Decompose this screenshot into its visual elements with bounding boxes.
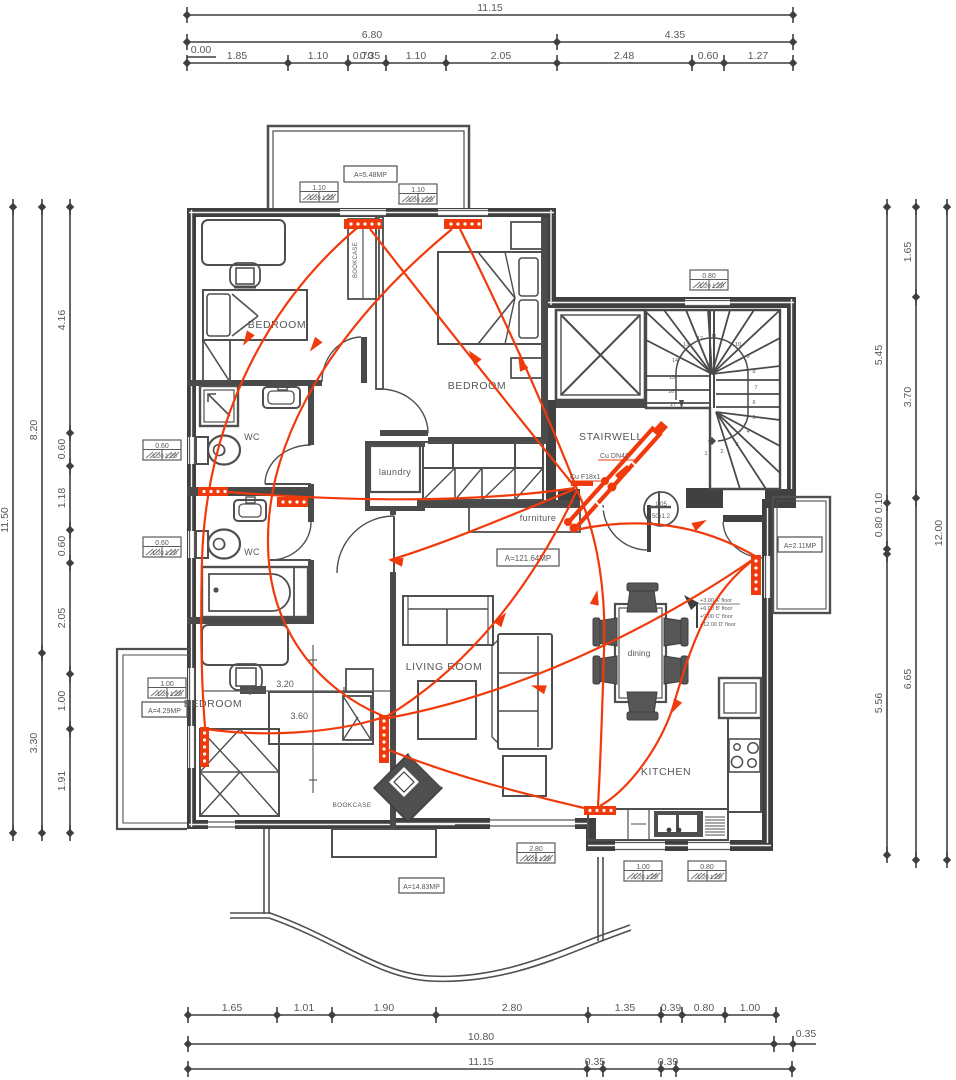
svg-text:5.56: 5.56 — [873, 693, 885, 714]
svg-text:0.35: 0.35 — [585, 1056, 606, 1068]
svg-text:0.35: 0.35 — [360, 50, 381, 62]
svg-text:11.15: 11.15 — [477, 2, 503, 14]
svg-text:16: 16 — [668, 389, 674, 395]
svg-text:1.90: 1.90 — [374, 1002, 395, 1014]
svg-text:+6.00 B' floor: +6.00 B' floor — [700, 606, 733, 612]
svg-text:STAIRWELL: STAIRWELL — [579, 431, 643, 443]
svg-text:1: 1 — [704, 451, 707, 457]
svg-text:0.35: 0.35 — [796, 1028, 817, 1040]
svg-text:1.85: 1.85 — [227, 50, 248, 62]
svg-text:dining: dining — [628, 648, 651, 658]
svg-text:0.80: 0.80 — [694, 1002, 715, 1014]
svg-text:7: 7 — [754, 385, 757, 391]
svg-text:0.60: 0.60 — [56, 439, 68, 460]
svg-text:BEDROOM: BEDROOM — [248, 319, 306, 331]
svg-text:1.65: 1.65 — [902, 242, 914, 263]
svg-text:1.18: 1.18 — [56, 488, 68, 509]
svg-text:4: 4 — [746, 429, 749, 435]
svg-text:BEDROOM: BEDROOM — [184, 698, 242, 710]
svg-text:1.00: 1.00 — [160, 681, 174, 688]
svg-text:10: 10 — [735, 342, 741, 348]
svg-text:11: 11 — [711, 334, 717, 340]
svg-text:3.20: 3.20 — [276, 679, 294, 689]
svg-text:+12.00 D' floor: +12.00 D' floor — [700, 622, 736, 628]
svg-text:3.70: 3.70 — [902, 387, 914, 408]
svg-text:2: 2 — [720, 449, 723, 455]
svg-text:1.10: 1.10 — [308, 50, 329, 62]
svg-text:0.10: 0.10 — [873, 493, 885, 514]
svg-text:2.48: 2.48 — [614, 50, 635, 62]
svg-text:furniture: furniture — [520, 513, 557, 523]
svg-text:3.30: 3.30 — [28, 733, 40, 754]
svg-text:1.91: 1.91 — [56, 771, 68, 792]
svg-text:WC: WC — [244, 547, 260, 557]
svg-text:2.80: 2.80 — [502, 1002, 523, 1014]
svg-text:0.39: 0.39 — [658, 1056, 679, 1068]
svg-text:A=4.29MP: A=4.29MP — [148, 708, 181, 715]
svg-text:KITCHEN: KITCHEN — [641, 766, 691, 778]
svg-text:1.00: 1.00 — [56, 691, 68, 712]
svg-text:0.39: 0.39 — [661, 1002, 682, 1014]
svg-text:8.20: 8.20 — [28, 420, 40, 441]
svg-text:LIVING ROOM: LIVING ROOM — [406, 661, 483, 673]
svg-text:2.05: 2.05 — [56, 608, 68, 629]
svg-text:BOOKCASE: BOOKCASE — [353, 242, 359, 278]
svg-text:1.05: 1.05 — [655, 502, 667, 508]
svg-text:6.65: 6.65 — [902, 669, 914, 690]
svg-text:0.80: 0.80 — [700, 864, 714, 871]
svg-text:5.45: 5.45 — [873, 345, 885, 366]
svg-text:1.10: 1.10 — [406, 50, 427, 62]
svg-text:Cu DN42: Cu DN42 — [600, 453, 629, 460]
svg-text:A=121.64MP: A=121.64MP — [505, 554, 551, 563]
svg-text:0.60: 0.60 — [698, 50, 719, 62]
svg-text:1.00: 1.00 — [636, 864, 650, 871]
svg-text:2.80: 2.80 — [529, 846, 543, 853]
svg-text:1.65: 1.65 — [222, 1002, 243, 1014]
svg-text:12: 12 — [697, 336, 703, 342]
svg-text:10.80: 10.80 — [468, 1031, 494, 1043]
svg-text:17: 17 — [670, 402, 676, 408]
svg-text:13: 13 — [683, 342, 689, 348]
svg-text:0.00: 0.00 — [191, 44, 212, 56]
svg-text:Cu F18x1: Cu F18x1 — [570, 474, 600, 481]
svg-text:A=14.83MP: A=14.83MP — [403, 884, 440, 891]
svg-text:1.35: 1.35 — [615, 1002, 636, 1014]
svg-text:0.60: 0.60 — [56, 536, 68, 557]
svg-text:laundry: laundry — [379, 467, 411, 477]
svg-text:A=2.11MP: A=2.11MP — [784, 543, 817, 550]
svg-text:4.16: 4.16 — [56, 310, 68, 331]
svg-text:11.15: 11.15 — [468, 1056, 494, 1068]
svg-text:0.80: 0.80 — [702, 273, 716, 280]
svg-text:2.05: 2.05 — [491, 50, 512, 62]
svg-text:1.10: 1.10 — [411, 187, 425, 194]
svg-text:0.60: 0.60 — [155, 540, 169, 547]
svg-text:A=5.48MP: A=5.48MP — [354, 172, 387, 179]
svg-text:4.35: 4.35 — [665, 29, 686, 41]
svg-text:BOOKCASE: BOOKCASE — [333, 802, 372, 809]
svg-text:3.60: 3.60 — [290, 711, 308, 721]
svg-text:3: 3 — [735, 442, 738, 448]
svg-text:WC: WC — [244, 432, 260, 442]
svg-text:6.80: 6.80 — [362, 29, 383, 41]
svg-text:8: 8 — [752, 369, 755, 375]
svg-text:1.01: 1.01 — [294, 1002, 315, 1014]
svg-text:1.00: 1.00 — [740, 1002, 761, 1014]
svg-text:50x1.2: 50x1.2 — [652, 514, 671, 520]
svg-text:1.10: 1.10 — [312, 185, 326, 192]
svg-text:5: 5 — [752, 415, 755, 421]
svg-text:9: 9 — [746, 354, 749, 360]
svg-text:12.00: 12.00 — [933, 520, 945, 546]
svg-text:0.60: 0.60 — [155, 443, 169, 450]
svg-text:11.50: 11.50 — [0, 507, 11, 533]
svg-text:1.27: 1.27 — [748, 50, 769, 62]
svg-text:14: 14 — [672, 358, 678, 364]
svg-text:0.80: 0.80 — [873, 517, 885, 538]
svg-text:15: 15 — [669, 375, 675, 381]
svg-text:6: 6 — [752, 400, 755, 406]
